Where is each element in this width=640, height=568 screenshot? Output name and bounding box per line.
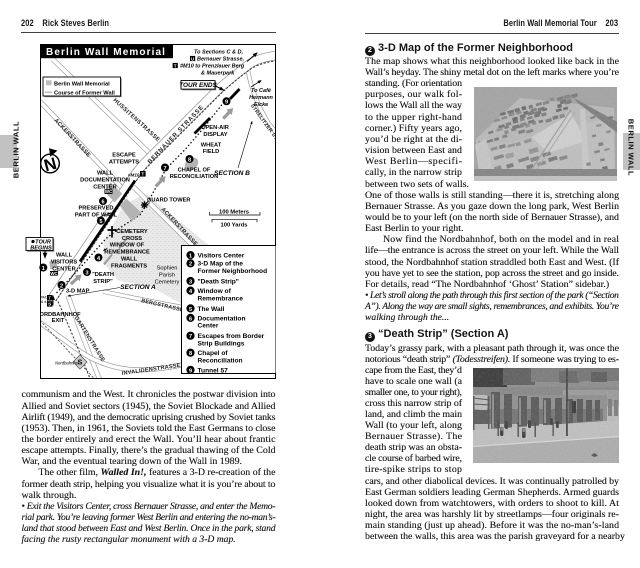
svg-text:WALL: WALL [56, 252, 73, 258]
svg-text:Sophien: Sophien [157, 265, 178, 271]
svg-text:#M10: #M10 [41, 295, 51, 299]
svg-text:100 Meters: 100 Meters [219, 209, 249, 215]
svg-text:"Death Strip": "Death Strip" [198, 278, 239, 285]
svg-text:8: 8 [189, 351, 192, 357]
svg-text:BEGINS: BEGINS [30, 245, 52, 251]
svg-text:Nordbahnhof: Nordbahnhof [55, 360, 80, 365]
svg-text:CHAPEL OF: CHAPEL OF [178, 167, 211, 173]
svg-text:2: 2 [60, 283, 63, 289]
svg-text:5: 5 [99, 219, 102, 225]
svg-text:1: 1 [189, 253, 192, 259]
svg-text:RECONCILIATION: RECONCILIATION [170, 173, 219, 179]
svg-text:T: T [141, 171, 144, 177]
svg-text:#M10 to Prenzlauer Berg: #M10 to Prenzlauer Berg [180, 63, 245, 69]
svg-text:WC: WC [105, 189, 113, 194]
svg-text:Cemetery: Cemetery [155, 279, 180, 285]
svg-text:WHEAT: WHEAT [201, 142, 222, 148]
svg-text:Course of Former Wall: Course of Former Wall [54, 90, 115, 96]
svg-text:OPEN-AIR: OPEN-AIR [201, 125, 229, 131]
svg-text:T: T [174, 63, 177, 68]
svg-text:EXIT: EXIT [52, 318, 65, 324]
svg-text:CEMETERY: CEMETERY [116, 229, 148, 235]
svg-text:ATTEMPTS: ATTEMPTS [109, 159, 139, 165]
svg-text:100 Yards: 100 Yards [221, 222, 248, 228]
svg-text:5: 5 [189, 306, 192, 312]
svg-text:REMEMBRANCE: REMEMBRANCE [104, 249, 150, 255]
svg-text:To Sections C & D,: To Sections C & D, [194, 49, 243, 55]
svg-text:SECTION B: SECTION B [214, 170, 250, 177]
svg-text:Parish: Parish [159, 272, 175, 278]
svg-text:Window of: Window of [198, 288, 232, 295]
svg-text:6: 6 [101, 199, 104, 205]
svg-text:9: 9 [189, 368, 192, 374]
svg-text:3-D MAP: 3-D MAP [66, 288, 90, 294]
svg-text:Berlin Wall Memorial: Berlin Wall Memorial [54, 81, 110, 87]
svg-text:ESCAPE: ESCAPE [112, 152, 136, 158]
svg-text:WALL: WALL [97, 170, 114, 176]
svg-text:3-D Map of the: 3-D Map of the [198, 260, 244, 267]
svg-text:Strip Buildings: Strip Buildings [198, 340, 245, 347]
svg-text:Berlin Wall Memorial: Berlin Wall Memorial [46, 46, 166, 57]
svg-text:WALL: WALL [121, 256, 138, 262]
svg-text:Bernauer Strasse,: Bernauer Strasse, [197, 56, 245, 62]
svg-text:PART OF WALL: PART OF WALL [75, 212, 118, 218]
svg-text:Escapes from Border: Escapes from Border [198, 333, 265, 340]
svg-text:SECTION A: SECTION A [120, 284, 156, 291]
svg-text:CROSS: CROSS [122, 236, 142, 242]
svg-text:VISITORS: VISITORS [51, 259, 78, 265]
svg-text:Reconciliation: Reconciliation [198, 357, 243, 364]
svg-text:Center: Center [198, 322, 219, 329]
svg-text:Former Neighborhood: Former Neighborhood [198, 268, 268, 275]
svg-text:Hermann: Hermann [249, 95, 273, 101]
svg-text:STRIP": STRIP" [93, 279, 113, 285]
svg-text:U: U [191, 56, 194, 61]
svg-text:WC: WC [50, 270, 58, 275]
svg-text:TOUR ENDS: TOUR ENDS [179, 82, 217, 89]
svg-text:3: 3 [189, 279, 192, 285]
svg-text:& #12: & #12 [41, 300, 52, 304]
svg-text:& Mauerpark: & Mauerpark [201, 70, 235, 76]
svg-text:6: 6 [189, 316, 192, 322]
svg-text:1: 1 [42, 265, 45, 271]
svg-text:PRESERVED: PRESERVED [79, 205, 114, 211]
svg-text:Documentation: Documentation [198, 315, 246, 322]
svg-text:"DEATH: "DEATH [92, 272, 114, 278]
svg-text:Eicke: Eicke [254, 102, 268, 108]
svg-text:To Café: To Café [251, 88, 271, 94]
svg-text:Tunnel 57: Tunnel 57 [198, 367, 229, 374]
svg-text:Remembrance: Remembrance [198, 295, 244, 302]
svg-text:DOCUMENTATION: DOCUMENTATION [80, 177, 130, 183]
svg-text:7: 7 [189, 334, 192, 340]
svg-text:Chapel of: Chapel of [198, 350, 229, 357]
svg-text:The Wall: The Wall [198, 305, 225, 312]
svg-text:FIELD: FIELD [203, 149, 219, 155]
svg-text:WINDOW OF: WINDOW OF [110, 242, 145, 248]
svg-text:9: 9 [225, 99, 228, 105]
svg-text:DISPLAY: DISPLAY [203, 132, 227, 138]
svg-text:GUARD TOWER: GUARD TOWER [147, 197, 191, 203]
svg-text:7: 7 [163, 165, 166, 171]
svg-text:8: 8 [188, 157, 191, 163]
svg-text:3: 3 [85, 270, 88, 276]
svg-text:2: 2 [189, 261, 192, 267]
svg-text:Visitors Center: Visitors Center [198, 252, 245, 259]
svg-text:FRAGMENTS: FRAGMENTS [111, 263, 147, 269]
